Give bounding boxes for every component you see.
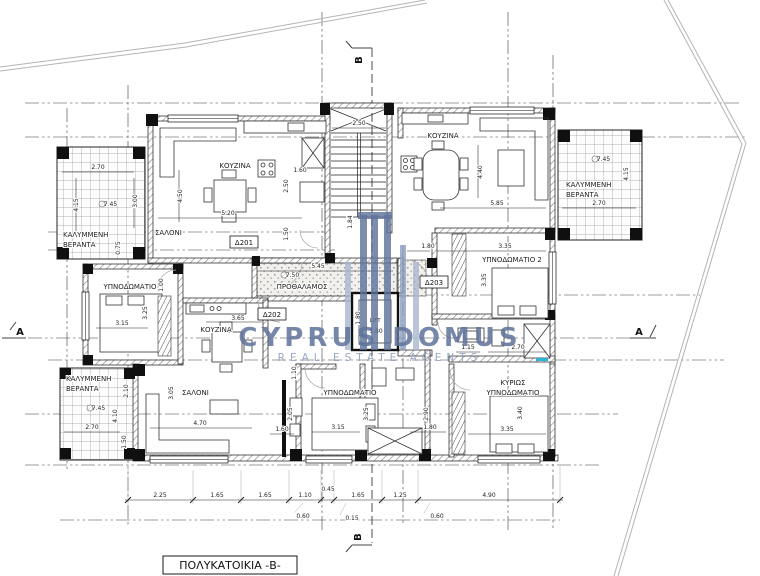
- window: [549, 252, 556, 304]
- dim-410-bl: 4.10: [112, 409, 119, 423]
- title-block: ΠΟΛΥΚΑΤΟΙΚΙΑ -Β-: [163, 556, 297, 574]
- dim-415-tr-veranda: 4.15: [623, 167, 630, 181]
- section-marker-b-bottom: B: [353, 533, 364, 541]
- label-veranda-tl-2: ΒΕΡΑΝΤΑ: [63, 241, 96, 249]
- dim-110-chain: 1.10: [298, 492, 312, 499]
- dim-315-left-bedroom: 3.15: [115, 320, 129, 327]
- dim-125-chain: 1.25: [393, 492, 407, 499]
- dim-165-chain: 1.65: [210, 492, 224, 499]
- dim-335v-bed2: 3.35: [481, 273, 488, 287]
- label-veranda-tl-1: ΚΑΛΥΜΜΕΝΗ: [63, 231, 108, 239]
- wc-202: [372, 368, 386, 386]
- dim-470-salon: 4.70: [193, 420, 207, 427]
- label-kitchen-201: ΚΟΥΖΙΝΑ: [219, 162, 250, 170]
- dim-315-mid-bedroom: 3.15: [331, 424, 345, 431]
- wardrobe-master: [452, 392, 465, 454]
- window: [478, 456, 540, 463]
- dim-270-tr-veranda: 2.70: [592, 200, 606, 207]
- wardrobe-left-bedroom: [158, 296, 171, 356]
- label-veranda-tr-2: ΒΕΡΑΝΤΑ: [566, 191, 599, 199]
- dim-075: 0.75: [115, 241, 122, 255]
- dim-225-chain: 2.25: [153, 492, 167, 499]
- section-marker-a-left: A: [16, 327, 24, 338]
- window: [168, 115, 238, 122]
- label-veranda-bl-1: ΚΑΛΥΜΜΕΝΗ: [66, 375, 111, 383]
- sink-202: [190, 305, 204, 312]
- label-bedroom-left: ΥΠΝΟΔΩΜΑΤΙΟ: [102, 283, 157, 291]
- floor-plan-drawing: 2.70 4.15 +7.45 3.00 0.75 4.50 5.20 2.50…: [0, 0, 760, 576]
- dim-585-tr: 5.85: [490, 200, 504, 207]
- dim-415-tl-veranda: 4.15: [73, 198, 80, 212]
- label-kitchen-202: ΚΟΥΖΙΝΑ: [200, 326, 231, 334]
- dim-165-chain: 1.65: [258, 492, 272, 499]
- unit-tag-201: Δ201: [235, 239, 253, 247]
- sink-tl: [288, 123, 304, 131]
- window: [150, 456, 228, 463]
- label-veranda-bl-2: ΒΕΡΑΝΤΑ: [66, 385, 99, 393]
- unit-tag-202: Δ202: [263, 311, 281, 319]
- dining-table-tl: [214, 180, 246, 212]
- dim-300: 3.00: [132, 194, 139, 208]
- dim-545-hall: 5.45: [311, 263, 325, 270]
- dim-325-left-bedroom: 3.25: [142, 306, 149, 320]
- dim-440-tr: 4.40: [477, 165, 484, 179]
- sink-tr: [428, 115, 443, 122]
- dim-160-salon: 1.60: [275, 426, 289, 433]
- dim-250-stair: 2.50: [352, 120, 366, 127]
- label-bedroom-mid: ΥΠΝΟΔΩΜΑΤΙΟ: [322, 389, 377, 397]
- label-salon-202: ΣΑΛΟΝΙ: [182, 389, 209, 397]
- coffee-table-tr: [498, 150, 524, 186]
- wardrobe-bedroom2: [452, 234, 466, 296]
- label-hall: ΠΡΟΘΑΛΑΜΟΣ: [277, 283, 328, 291]
- tv-wall: [282, 380, 286, 457]
- dim-110: 1.10: [291, 366, 298, 380]
- dining-table-tr: [423, 150, 459, 200]
- dim-270-tl-veranda: 2.70: [91, 164, 105, 171]
- floor-plan-page: 2.70 4.15 +7.45 3.00 0.75 4.50 5.20 2.50…: [0, 0, 760, 576]
- dim-270-bl-veranda: 2.70: [85, 424, 99, 431]
- dim-205: 2.05: [287, 407, 294, 421]
- dim-250-bath-tl: 2.50: [283, 179, 290, 193]
- dim-325-mid-bedroom: 3.25: [363, 407, 370, 421]
- drawing-title: ΠΟΛΥΚΑΤΟΙΚΙΑ -Β-: [179, 559, 281, 572]
- dim-490-chain: 4.90: [482, 492, 496, 499]
- dim-305-salon: 3.05: [168, 386, 175, 400]
- window: [82, 292, 89, 340]
- section-marker-b-top: B: [354, 56, 365, 64]
- dim-210-bl: 2.10: [123, 384, 130, 398]
- dim-290-hall: 2.90: [423, 407, 430, 421]
- watermark-name: CYPRUS DOMUS: [238, 323, 521, 353]
- dim-180-bed2: 1.80: [421, 243, 435, 250]
- label-veranda-tr-1: ΚΑΛΥΜΜΕΝΗ: [566, 181, 611, 189]
- dim-045-chain: 0.45: [321, 486, 335, 493]
- dim-520-salon: 5.20: [221, 210, 235, 217]
- dim-160-bath-tl: 1.60: [293, 167, 307, 174]
- section-marker-a-right: A: [635, 327, 643, 338]
- dim-060-chain: 0.60: [430, 513, 444, 520]
- dim-015-chain: 0.15: [345, 515, 359, 522]
- basin-202: [396, 368, 414, 380]
- label-bedroom2: ΥΠΝΟΔΩΜΑΤΙΟ 2: [481, 256, 542, 264]
- dim-150-tl: 1.50: [283, 227, 290, 241]
- label-master-2: ΥΠΝΟΔΩΜΑΤΙΟ: [485, 389, 540, 397]
- label-salon-201: ΣΑΛΟΝΙ: [155, 229, 182, 237]
- dim-060-chain: 0.60: [296, 513, 310, 520]
- window: [470, 107, 534, 114]
- dim-335-master: 3.35: [500, 426, 514, 433]
- dim-100: 1.00: [158, 278, 165, 292]
- dim-184: 1.84: [347, 215, 354, 229]
- dim-340-master: 3.40: [517, 406, 524, 420]
- watermark-tagline: REAL ESTATE AGENTS: [278, 352, 483, 364]
- dim-180-hall: 1.80: [423, 424, 437, 431]
- dim-150-bl: 1.50: [121, 435, 128, 449]
- dim-450-salon: 4.50: [177, 189, 184, 203]
- dim-335-bed2: 3.35: [498, 243, 512, 250]
- dim-365-kitchen202: 3.65: [231, 315, 245, 322]
- coffee-table-salon: [210, 400, 238, 414]
- window: [306, 456, 352, 463]
- label-master-1: ΚΥΡΙΩΣ: [501, 379, 526, 387]
- dim-165-chain: 1.65: [351, 492, 365, 499]
- kitchen-counter-tl: [244, 121, 326, 133]
- unit-tag-203: Δ203: [425, 279, 443, 287]
- door-sill-marker: [536, 358, 548, 361]
- label-kitchen-203: ΚΟΥΖΙΝΑ: [427, 132, 458, 140]
